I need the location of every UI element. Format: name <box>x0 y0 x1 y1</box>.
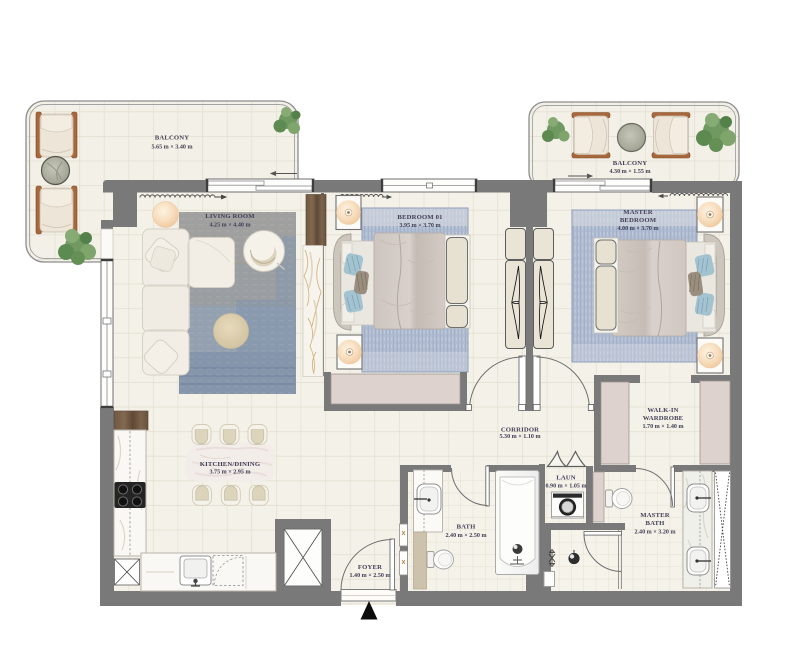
svg-text:FOYER: FOYER <box>358 564 382 571</box>
svg-text:LIVING ROOM: LIVING ROOM <box>205 213 255 220</box>
svg-text:BALCONY: BALCONY <box>155 135 190 142</box>
svg-text:LAUN: LAUN <box>556 475 576 482</box>
svg-text:BEDROOM 01: BEDROOM 01 <box>397 214 442 221</box>
svg-text:WARDROBE: WARDROBE <box>643 415 684 422</box>
svg-text:BATH: BATH <box>456 524 476 531</box>
svg-text:BEDROOM: BEDROOM <box>620 217 657 224</box>
svg-text:1.70 m × 1.40 m: 1.70 m × 1.40 m <box>642 424 683 430</box>
svg-text:MASTER: MASTER <box>640 512 670 519</box>
svg-text:3.75 m × 2.95 m: 3.75 m × 2.95 m <box>209 470 250 476</box>
svg-text:4.25 m × 4.40 m: 4.25 m × 4.40 m <box>209 223 250 229</box>
svg-text:0.90 m × 1.05 m: 0.90 m × 1.05 m <box>545 484 586 490</box>
svg-text:WALK-IN: WALK-IN <box>647 407 678 414</box>
svg-text:MASTER: MASTER <box>623 209 653 216</box>
svg-text:5.30 m × 1.10 m: 5.30 m × 1.10 m <box>499 434 540 440</box>
svg-text:5.65 m × 3.40 m: 5.65 m × 3.40 m <box>151 145 192 151</box>
svg-text:4.00 m × 3.70 m: 4.00 m × 3.70 m <box>617 226 658 232</box>
svg-text:2.40 m × 2.50 m: 2.40 m × 2.50 m <box>445 533 486 539</box>
svg-text:BATH: BATH <box>645 520 665 527</box>
svg-text:KITCHEN/DINING: KITCHEN/DINING <box>200 461 261 468</box>
svg-text:1.40 m × 2.50 m: 1.40 m × 2.50 m <box>349 573 390 579</box>
svg-text:2.40 m × 3.20 m: 2.40 m × 3.20 m <box>634 530 675 536</box>
svg-text:4.30 m × 1.55 m: 4.30 m × 1.55 m <box>609 169 650 175</box>
svg-text:BALCONY: BALCONY <box>613 160 648 167</box>
svg-text:CORRIDOR: CORRIDOR <box>501 427 539 434</box>
svg-text:3.95 m × 3.70 m: 3.95 m × 3.70 m <box>399 223 440 229</box>
